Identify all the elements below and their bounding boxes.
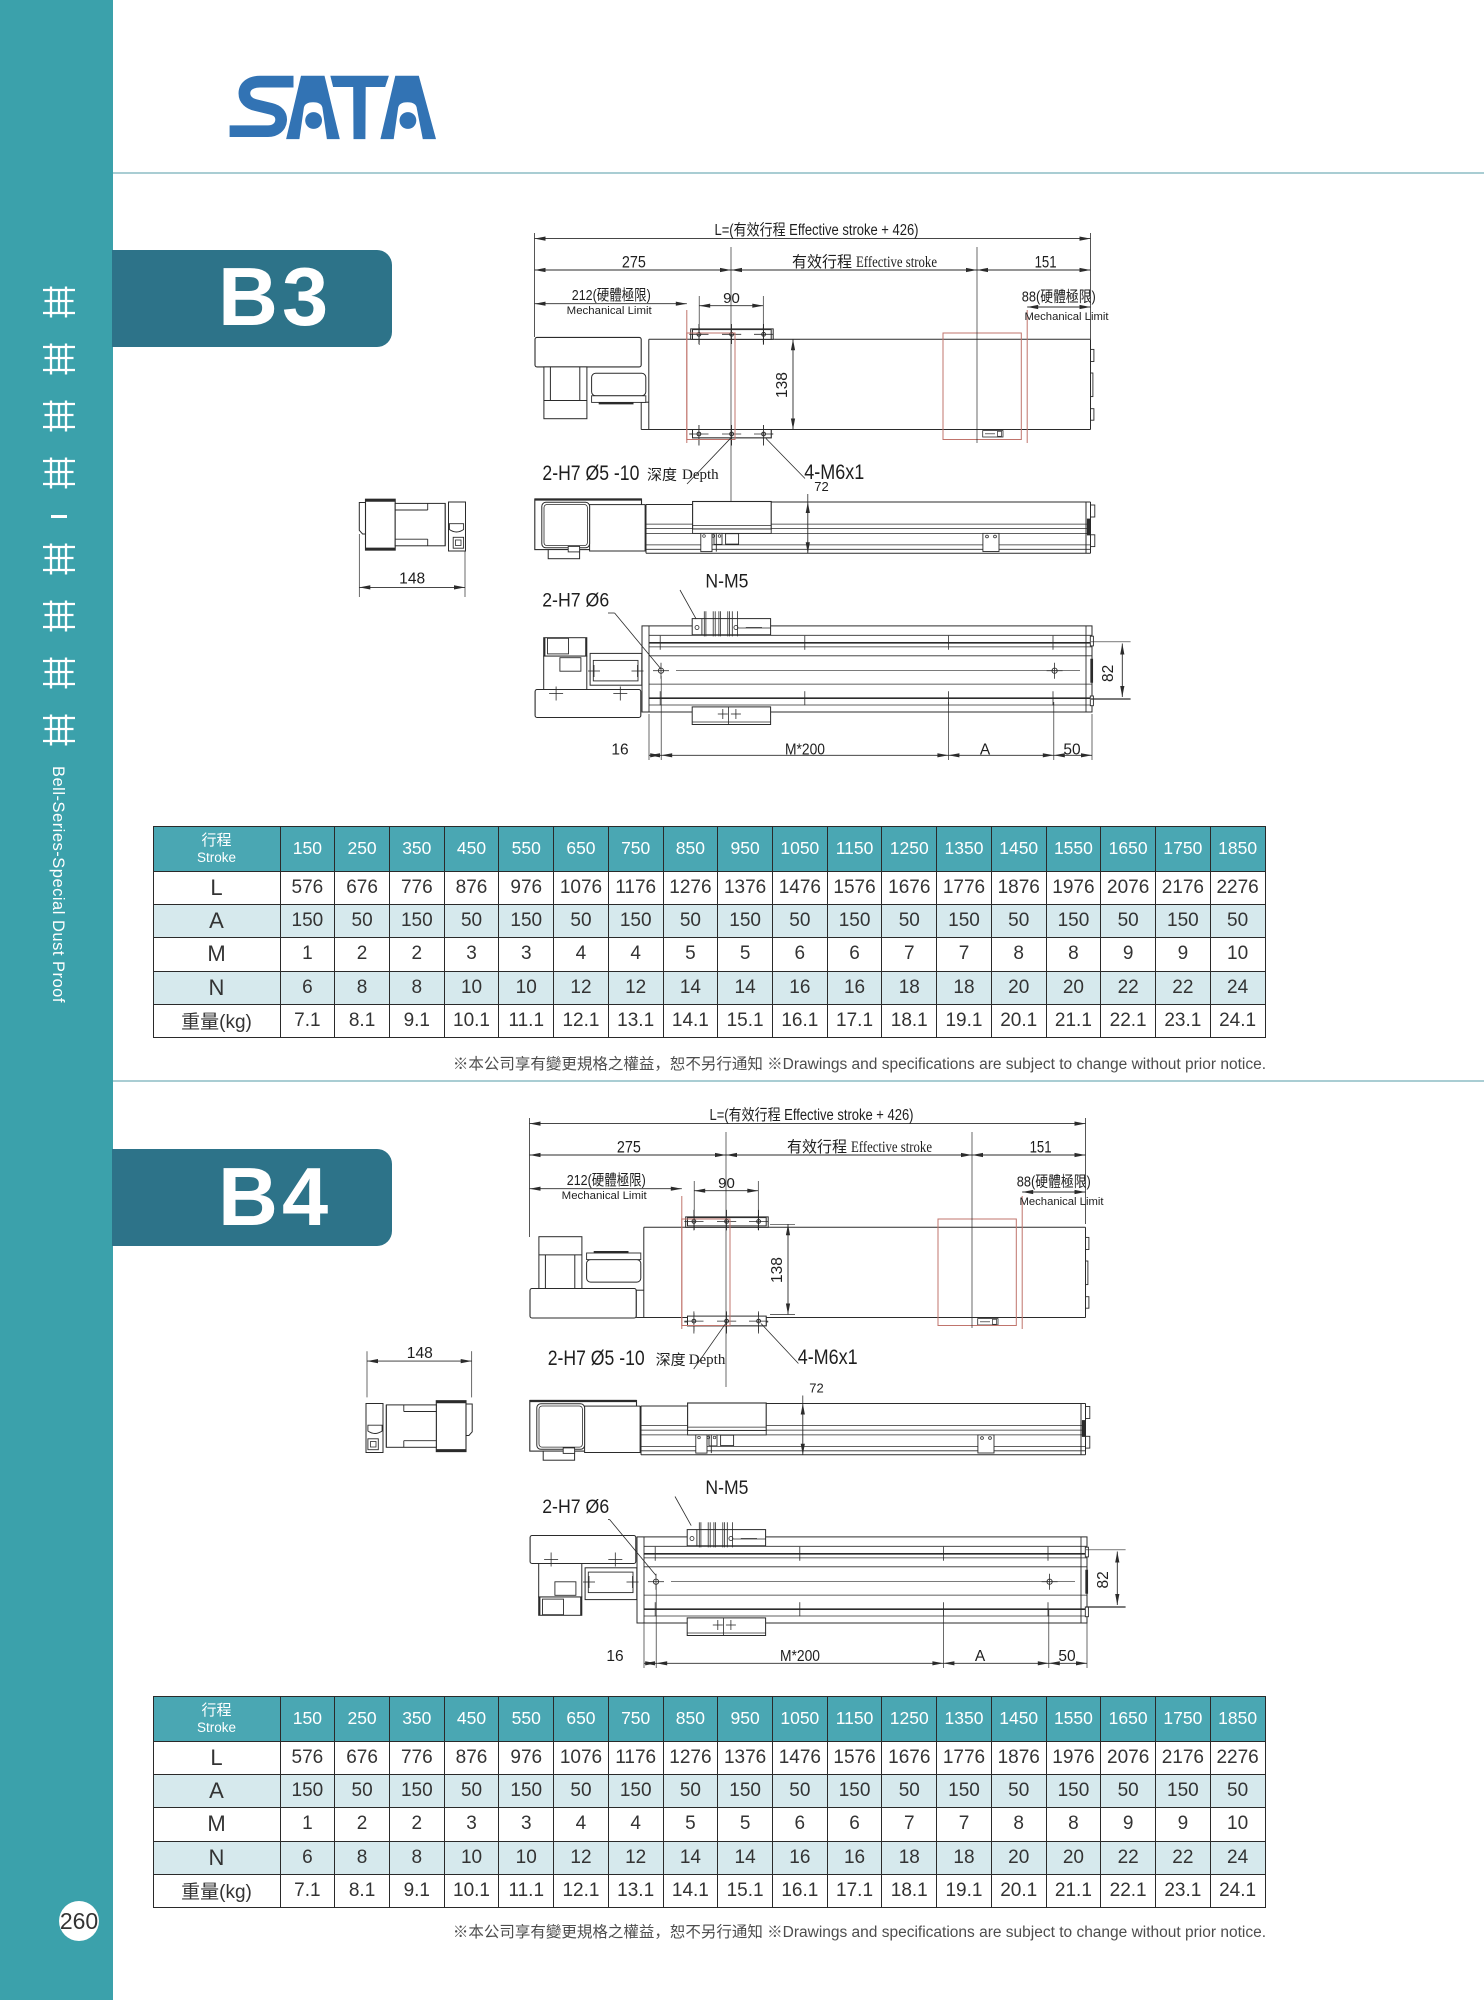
- svg-text:Effective stroke: Effective stroke: [851, 1139, 932, 1156]
- svg-text:16: 16: [611, 742, 628, 759]
- svg-text:16: 16: [606, 1648, 623, 1665]
- svg-text:151: 151: [1035, 253, 1057, 272]
- svg-text:Mechanical Limit: Mechanical Limit: [567, 305, 652, 317]
- svg-text:4-M6x1: 4-M6x1: [798, 1346, 858, 1369]
- svg-text:90: 90: [723, 290, 740, 307]
- svg-text:82: 82: [1100, 665, 1117, 682]
- svg-text:138: 138: [769, 1257, 786, 1283]
- svg-text:A: A: [980, 742, 991, 759]
- svg-text:148: 148: [399, 571, 425, 588]
- svg-text:深度: 深度: [656, 1352, 686, 1369]
- svg-text:138: 138: [774, 372, 791, 398]
- svg-text:148: 148: [407, 1345, 433, 1362]
- svg-text:Depth: Depth: [689, 1352, 726, 1368]
- svg-text:Mechanical Limit: Mechanical Limit: [562, 1190, 647, 1202]
- svg-text:A: A: [975, 1648, 986, 1665]
- svg-text:2-H7 Ø5 -10: 2-H7 Ø5 -10: [542, 462, 639, 485]
- svg-text:50: 50: [1058, 1648, 1076, 1665]
- svg-text:72: 72: [814, 479, 828, 494]
- svg-text:有效行程: 有效行程: [787, 1138, 847, 1156]
- svg-text:Mechanical Limit: Mechanical Limit: [1020, 1196, 1104, 1208]
- svg-text:82: 82: [1095, 1571, 1112, 1588]
- svg-text:50: 50: [1063, 742, 1081, 759]
- svg-text:L=(有效行程 Effective stroke + 426: L=(有效行程 Effective stroke + 426): [715, 221, 919, 239]
- svg-text:M*200: M*200: [785, 742, 825, 759]
- svg-text:有效行程: 有效行程: [792, 253, 852, 271]
- svg-text:2-H7 Ø6: 2-H7 Ø6: [542, 590, 609, 612]
- svg-text:2-H7 Ø5 -10: 2-H7 Ø5 -10: [548, 1347, 645, 1370]
- svg-text:90: 90: [718, 1175, 735, 1192]
- svg-text:N-M5: N-M5: [705, 1477, 748, 1499]
- svg-text:2-H7 Ø6: 2-H7 Ø6: [542, 1496, 609, 1518]
- svg-text:275: 275: [622, 253, 646, 272]
- svg-text:212(硬體極限): 212(硬體極限): [567, 1172, 646, 1189]
- svg-text:212(硬體極限): 212(硬體極限): [572, 287, 651, 304]
- svg-text:L=(有效行程 Effective stroke + 426: L=(有效行程 Effective stroke + 426): [710, 1106, 914, 1124]
- svg-text:151: 151: [1030, 1138, 1052, 1157]
- svg-text:深度: 深度: [647, 467, 677, 484]
- svg-text:88(硬體極限): 88(硬體極限): [1022, 289, 1096, 306]
- svg-text:M*200: M*200: [780, 1648, 820, 1665]
- svg-text:72: 72: [809, 1381, 823, 1396]
- svg-text:275: 275: [617, 1138, 641, 1157]
- svg-text:88(硬體極限): 88(硬體極限): [1017, 1174, 1091, 1191]
- svg-text:N-M5: N-M5: [705, 571, 748, 593]
- svg-text:Effective stroke: Effective stroke: [856, 254, 937, 271]
- svg-text:Mechanical Limit: Mechanical Limit: [1025, 311, 1109, 323]
